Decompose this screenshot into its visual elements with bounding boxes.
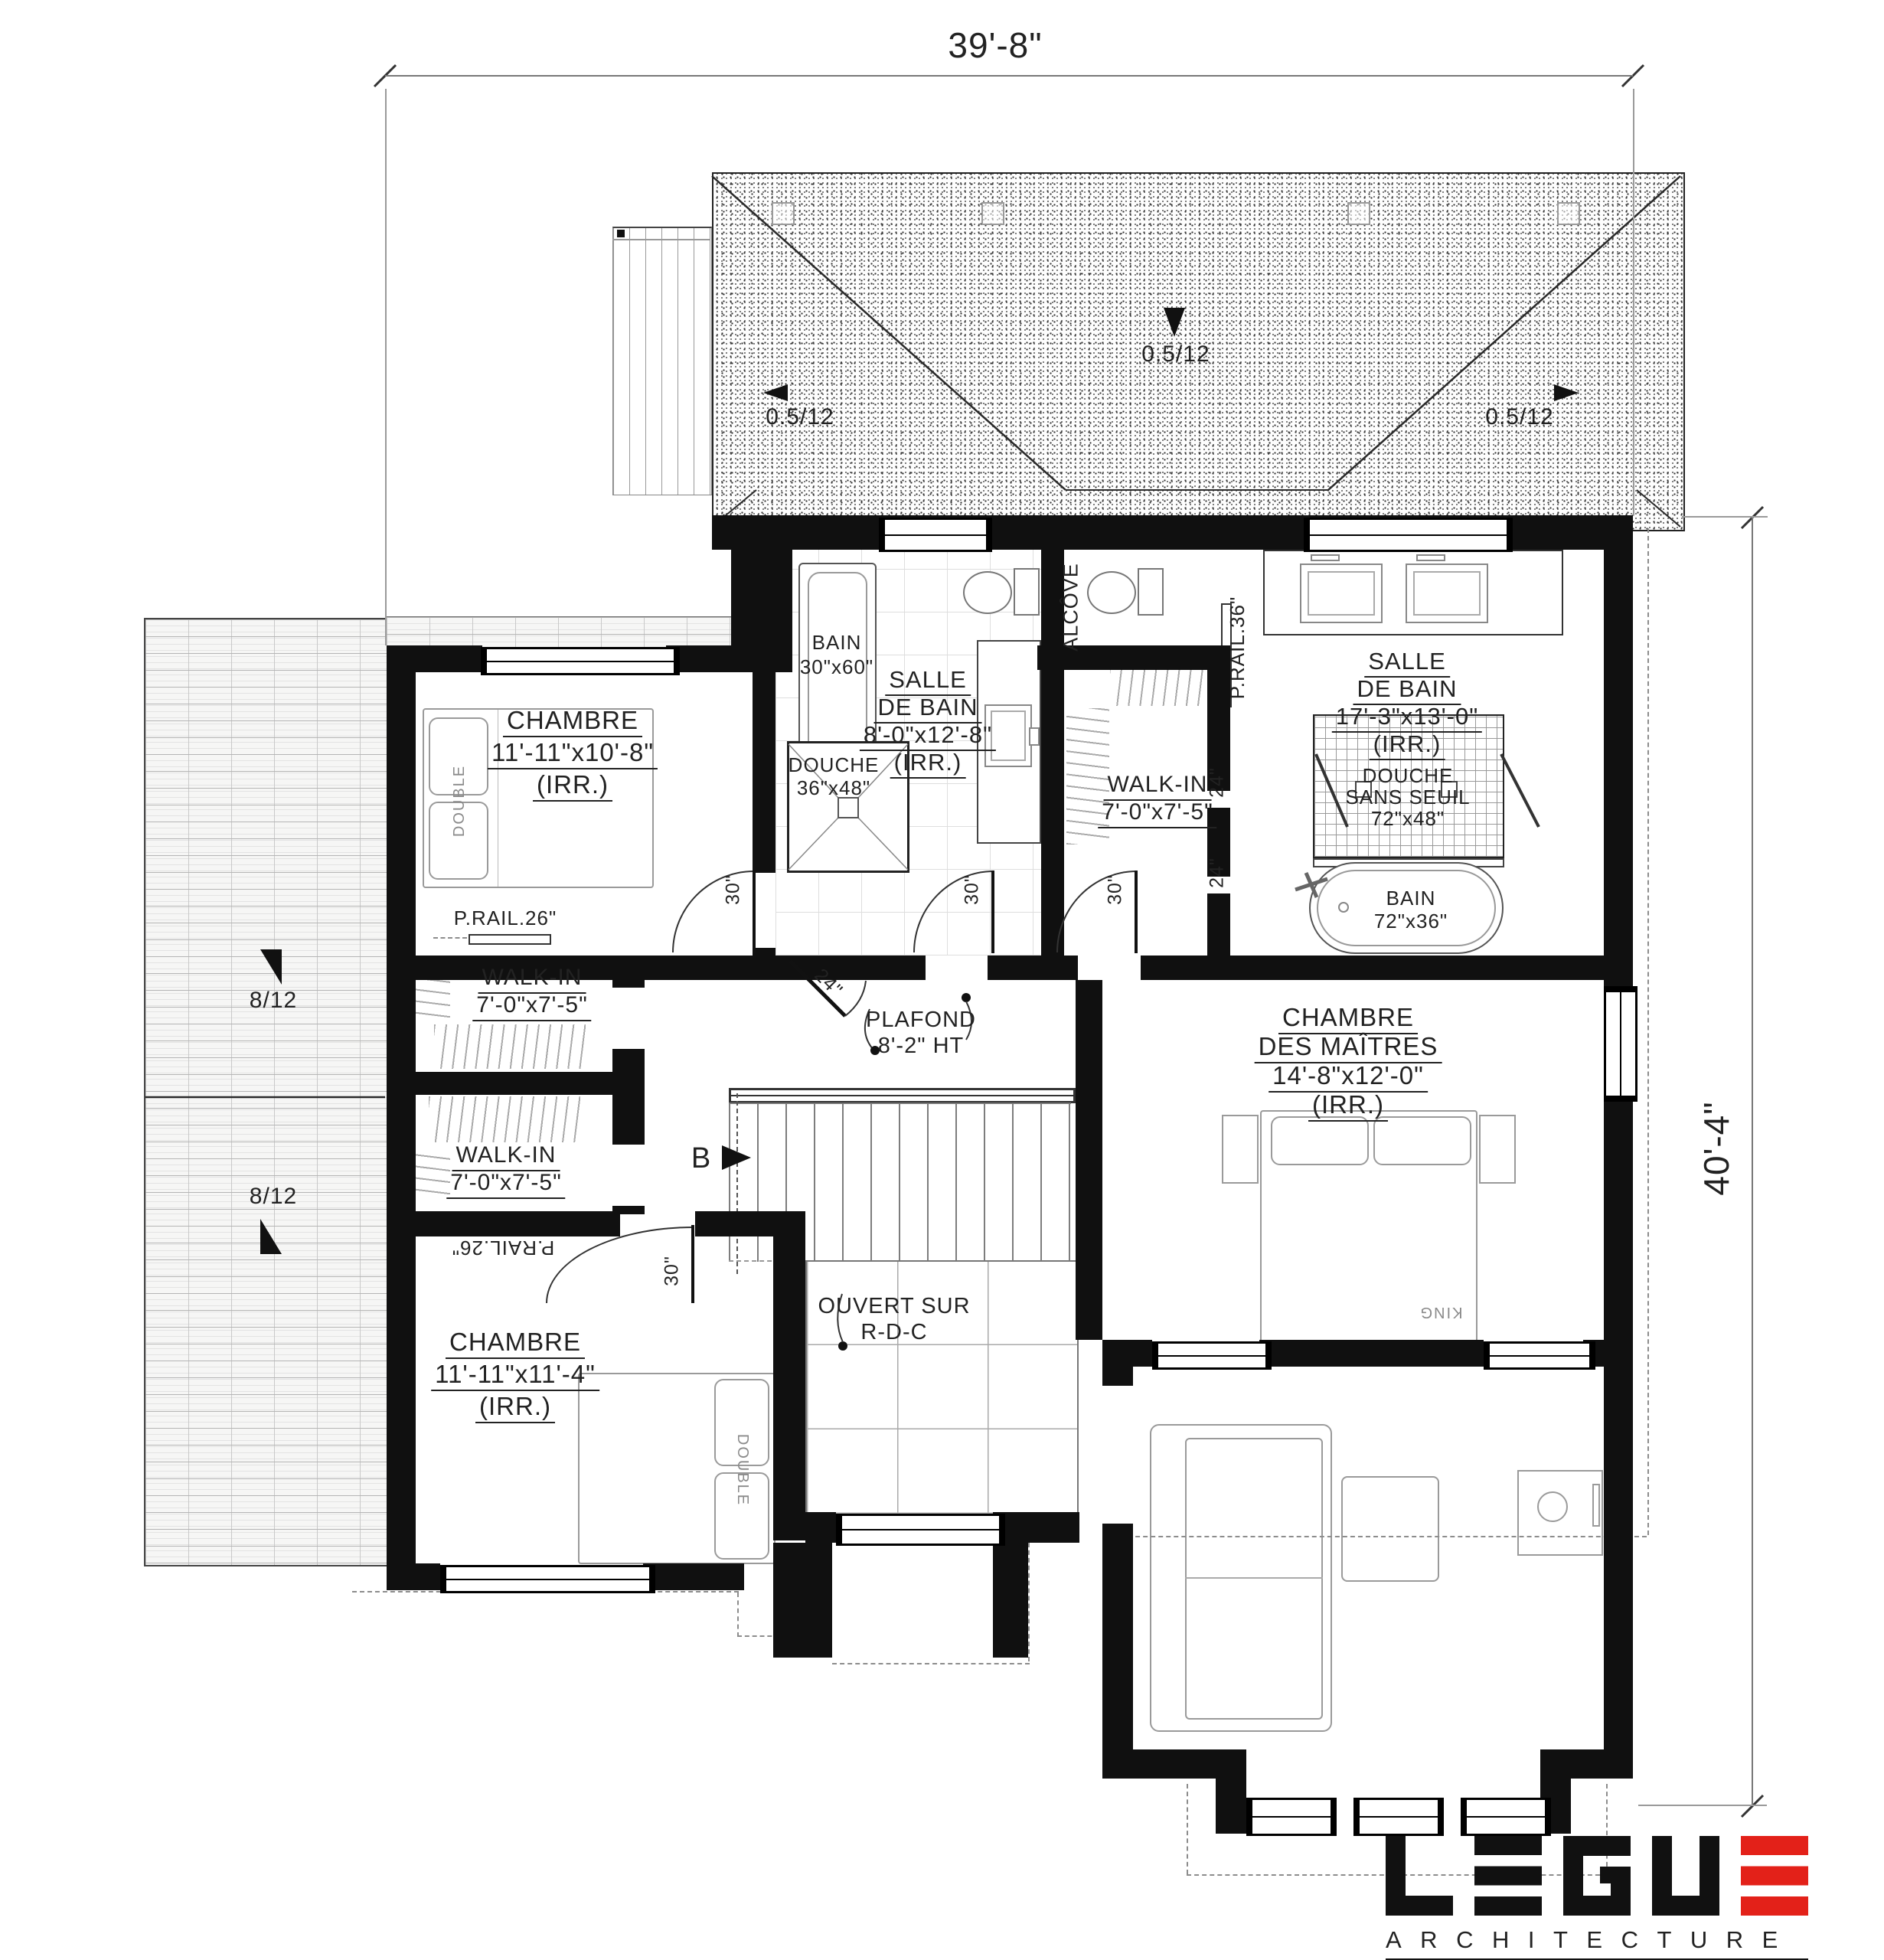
dimension-label-height: 40'-4" (1699, 1101, 1734, 1195)
rail-label: P.RAIL.26" (454, 908, 557, 928)
fixture-label: BAIN (812, 632, 862, 652)
room-note: (IRR.) (1308, 1092, 1388, 1122)
room-label: SALLE (885, 668, 971, 696)
room-label: CHAMBRE (1278, 1004, 1418, 1034)
room-note: (IRR.) (533, 772, 612, 802)
fixture-label: BAIN (1386, 888, 1436, 908)
room-size: 8'-0"x12'-8" (860, 723, 996, 751)
extension-line (1638, 1805, 1767, 1806)
room-label: SALLE (1364, 649, 1450, 678)
room-note: (IRR.) (1370, 732, 1445, 760)
logo-letter-G (1563, 1836, 1631, 1916)
logo-letter-E-accent (1741, 1836, 1808, 1916)
room-label: DE BAIN (873, 695, 981, 724)
floor-plan-sheet: 0.5/12 0.5/12 0.5/12 8/12 8/12 (0, 0, 1884, 1960)
door-size: 30" (724, 874, 743, 905)
room-size: 11'-11"x11'-4" (431, 1361, 599, 1391)
room-label: DES MAÎTRES (1255, 1034, 1442, 1063)
section-marker-label: B (691, 1144, 711, 1173)
bed-tag: DOUBLE (735, 1434, 750, 1506)
room-note: (IRR.) (475, 1393, 555, 1423)
door-size: 30" (663, 1256, 682, 1286)
extension-line (1682, 516, 1768, 518)
extension-line (1633, 89, 1634, 515)
room-size: 14'-8"x12'-0" (1269, 1063, 1428, 1093)
room-label: WALK-IN (1104, 773, 1212, 801)
dimension-line (385, 75, 1633, 77)
bed-tag: DOUBLE (452, 765, 467, 837)
fixture-size: 72"x48" (1371, 808, 1445, 828)
logo-letter-L (1386, 1836, 1453, 1916)
room-label: WALK-IN (478, 966, 586, 994)
ceiling-note: 8'-2" HT (878, 1035, 964, 1057)
room-label: CHAMBRE (503, 707, 642, 737)
dim-label: 24" (1208, 857, 1227, 888)
room-label: CHAMBRE (446, 1329, 585, 1359)
fixture-size: 72"x36" (1374, 911, 1448, 931)
room-size: 7'-0"x7'-5" (446, 1171, 565, 1199)
room-size: 7'-0"x7'-5" (472, 994, 591, 1021)
section-marker-arrow (722, 1145, 751, 1170)
fixture-size: 30"x60" (800, 657, 873, 677)
door-size: 30" (1106, 874, 1125, 905)
room-label: DE BAIN (1353, 677, 1461, 705)
dim-label: 24" (1208, 767, 1227, 798)
void-note: OUVERT SUR (818, 1295, 970, 1318)
door-size: 30" (963, 874, 982, 905)
room-label: WALK-IN (452, 1144, 560, 1171)
bed-tag: KING (1419, 1305, 1463, 1320)
room-size: 17'-3"x13'-0" (1332, 704, 1482, 733)
logo-letters (1386, 1836, 1813, 1916)
rail-label: P.RAIL.26" (452, 1238, 554, 1258)
room-note: (IRR.) (890, 750, 966, 779)
dimension-line (1752, 518, 1753, 1806)
fixture-label: SANS SEUIL (1345, 787, 1470, 807)
dimension-label-width: 39'-8" (948, 28, 1042, 63)
void-note: R-D-C (860, 1321, 927, 1344)
fixture-label: DOUCHE (789, 755, 880, 775)
room-size: 11'-11"x10'-8" (488, 740, 658, 769)
fixture-label: DOUCHE (1363, 766, 1454, 786)
fixture-size: 36"x48" (797, 778, 870, 798)
alcove-label: ALCÔVE (1061, 563, 1082, 652)
annotation-lines (0, 0, 1884, 1960)
room-size: 7'-0"x7'-5" (1098, 801, 1216, 828)
logo-letter-U (1652, 1836, 1719, 1916)
logo-letter-E (1474, 1836, 1542, 1916)
ceiling-note: PLAFOND (866, 1009, 976, 1031)
logo: ARCHITECTURE (1386, 1836, 1813, 1960)
rail-label: P.RAIL.36" (1227, 596, 1247, 699)
extension-line (385, 89, 387, 645)
logo-subtitle: ARCHITECTURE (1386, 1926, 1813, 1954)
